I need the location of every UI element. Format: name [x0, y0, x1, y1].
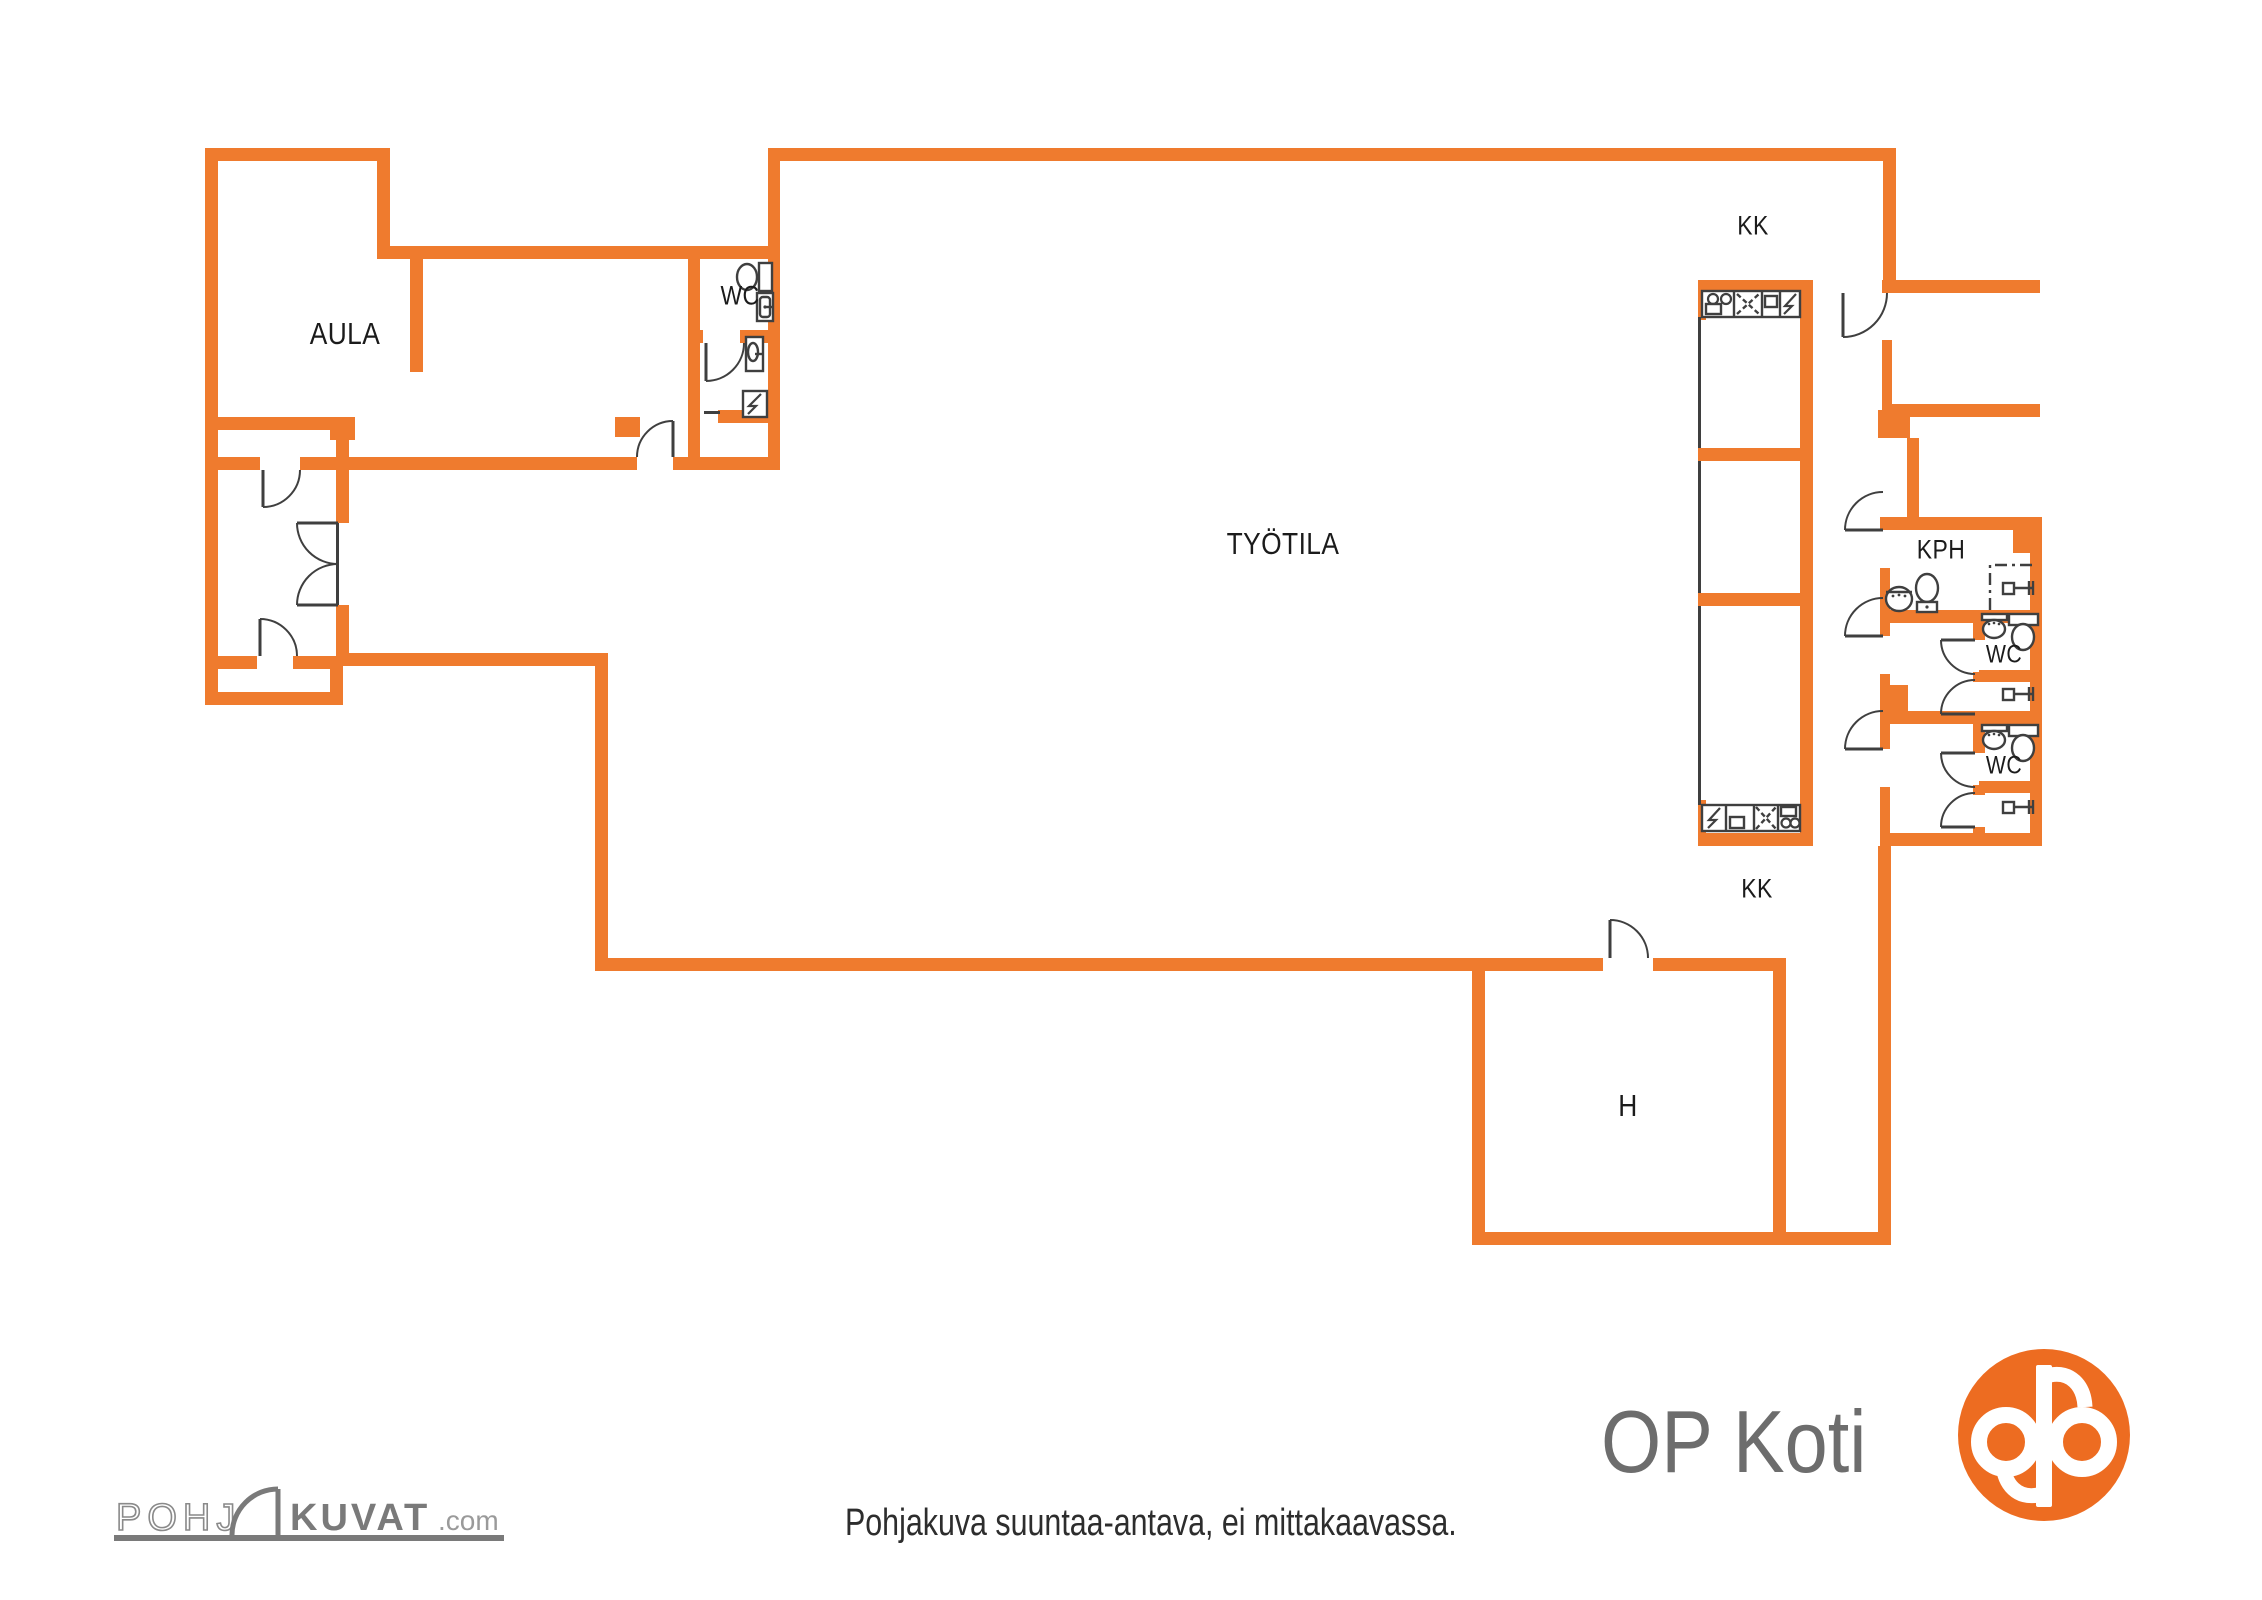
door-swing-arc: [706, 343, 744, 381]
fixture: [1998, 623, 2001, 626]
door-swing-arc: [1845, 711, 1883, 749]
wall-segment: [1883, 148, 1896, 293]
glass-partition: [1698, 461, 1701, 593]
door-swing-arc: [263, 470, 300, 507]
glass-partition: [704, 411, 720, 414]
wall-segment: [1878, 846, 1891, 1245]
glass-partition: [1698, 606, 1701, 805]
room-label-kk-3: KK: [1737, 211, 1768, 242]
fixture: [1993, 622, 1996, 625]
pohjakuvat-watermark: POHJ KUVAT .com: [110, 1480, 530, 1555]
glass-partition: [1698, 317, 1701, 448]
fixture: [748, 343, 758, 361]
wall-segment: [1880, 685, 1908, 711]
room-label-aula-0: AULA: [310, 316, 381, 352]
fixture: [1791, 819, 1800, 828]
wall-segment: [688, 330, 703, 343]
fixture: [743, 391, 767, 417]
fixture: [1904, 595, 1907, 598]
floorplan-canvas: Pohjakuva suuntaa-antava, ei mittakaavas…: [0, 0, 2262, 1600]
fixture: [1998, 734, 2001, 737]
wall-segment: [615, 417, 640, 437]
room-label-h-8: H: [1618, 1088, 1637, 1124]
fixture: [2003, 689, 2014, 700]
fixture: [1988, 623, 1991, 626]
door-swing-arc: [1843, 293, 1887, 337]
wall-segment: [336, 470, 349, 523]
door-swing-arc: [1845, 598, 1883, 636]
door-swing-arc: [297, 564, 338, 605]
door-swing-arc: [1845, 492, 1883, 530]
wall-segment: [1878, 410, 1910, 438]
fixture: [1782, 819, 1791, 828]
floorplan-drawing: [0, 0, 2262, 1600]
wall-segment: [1880, 833, 2042, 846]
fixture: [1892, 595, 1895, 598]
wall-segment: [1698, 833, 1813, 846]
wall-segment: [595, 958, 1603, 971]
wall-segment: [595, 653, 608, 971]
disclaimer-text: Pohjakuva suuntaa-antava, ei mittakaavas…: [845, 1502, 1457, 1545]
wall-segment: [1880, 623, 1890, 636]
fixture: [1886, 587, 1912, 611]
wall-segment: [1773, 958, 1786, 1245]
fixture: [1708, 294, 1718, 304]
wall-segment: [330, 417, 355, 440]
door-swing-arc: [1941, 753, 1975, 787]
pohjakuvat-text-left: POHJ: [116, 1497, 241, 1539]
wall-segment: [1880, 724, 1890, 749]
wall-segment: [1472, 1232, 1891, 1245]
wall-segment: [300, 457, 637, 470]
fixture: [1925, 605, 1928, 608]
fixture: [1721, 294, 1731, 304]
wall-segment: [1907, 438, 1919, 518]
wall-segment: [218, 417, 334, 430]
wall-segment: [377, 246, 780, 259]
pohjakuvat-text-mid: KUVAT: [290, 1497, 430, 1539]
room-label-kk-4: KK: [1741, 874, 1772, 905]
wall-segment: [205, 692, 343, 705]
fixture: [1706, 304, 1721, 314]
wall-segment: [336, 653, 608, 666]
wall-segment: [688, 343, 700, 457]
wall-segment: [205, 148, 390, 161]
fixture: [1988, 734, 1991, 737]
room-label-wc-1: WC: [720, 281, 759, 312]
room-label-tytila-2: TYÖTILA: [1227, 526, 1340, 562]
wall-segment: [688, 259, 700, 334]
wall-segment: [1882, 280, 2040, 293]
pohjakuvat-text-suffix: .com: [438, 1505, 499, 1536]
wall-segment: [1653, 958, 1777, 971]
fixture: [1781, 807, 1796, 816]
wall-segment: [410, 259, 423, 372]
fixture: [1730, 817, 1744, 828]
door-swing-arc: [1941, 793, 1975, 827]
fixture: [763, 305, 766, 308]
fixture: [1765, 296, 1777, 307]
fixture: [1898, 594, 1901, 597]
wall-segment: [377, 148, 390, 259]
room-label-kph-5: KPH: [1917, 535, 1965, 566]
wall-segment: [673, 457, 780, 470]
wall-segment: [1698, 448, 1800, 461]
door-swing-arc: [1610, 920, 1648, 958]
op-koti-wordmark: OP Koti: [1601, 1398, 1866, 1486]
door-swing-arc: [1941, 680, 1975, 714]
room-label-wc-7: WC: [1986, 752, 2022, 781]
wall-segment: [1472, 958, 1485, 1245]
pohjakuvat-baseline: [114, 1535, 504, 1541]
wall-segment: [768, 148, 1889, 161]
room-label-wc-6: WC: [1986, 641, 2022, 670]
fixture: [2003, 802, 2014, 813]
wall-segment: [218, 656, 257, 669]
door-swing-arc: [260, 619, 297, 656]
fixture: [1916, 574, 1938, 602]
op-logo-icon: [1958, 1349, 2130, 1521]
wall-segment: [218, 457, 260, 470]
wall-segment: [1698, 593, 1800, 606]
wall-segment: [1979, 670, 2042, 682]
door-swing-arc: [1941, 640, 1975, 674]
door-swing-arc: [637, 421, 673, 457]
fixture: [759, 263, 772, 291]
door-swing-arc: [297, 523, 338, 564]
fixture: [2003, 583, 2014, 594]
wall-segment: [336, 605, 349, 656]
wall-segment: [205, 148, 218, 705]
fixture: [1993, 733, 1996, 736]
wall-segment: [1979, 781, 2042, 793]
wall-segment: [1800, 280, 1813, 846]
